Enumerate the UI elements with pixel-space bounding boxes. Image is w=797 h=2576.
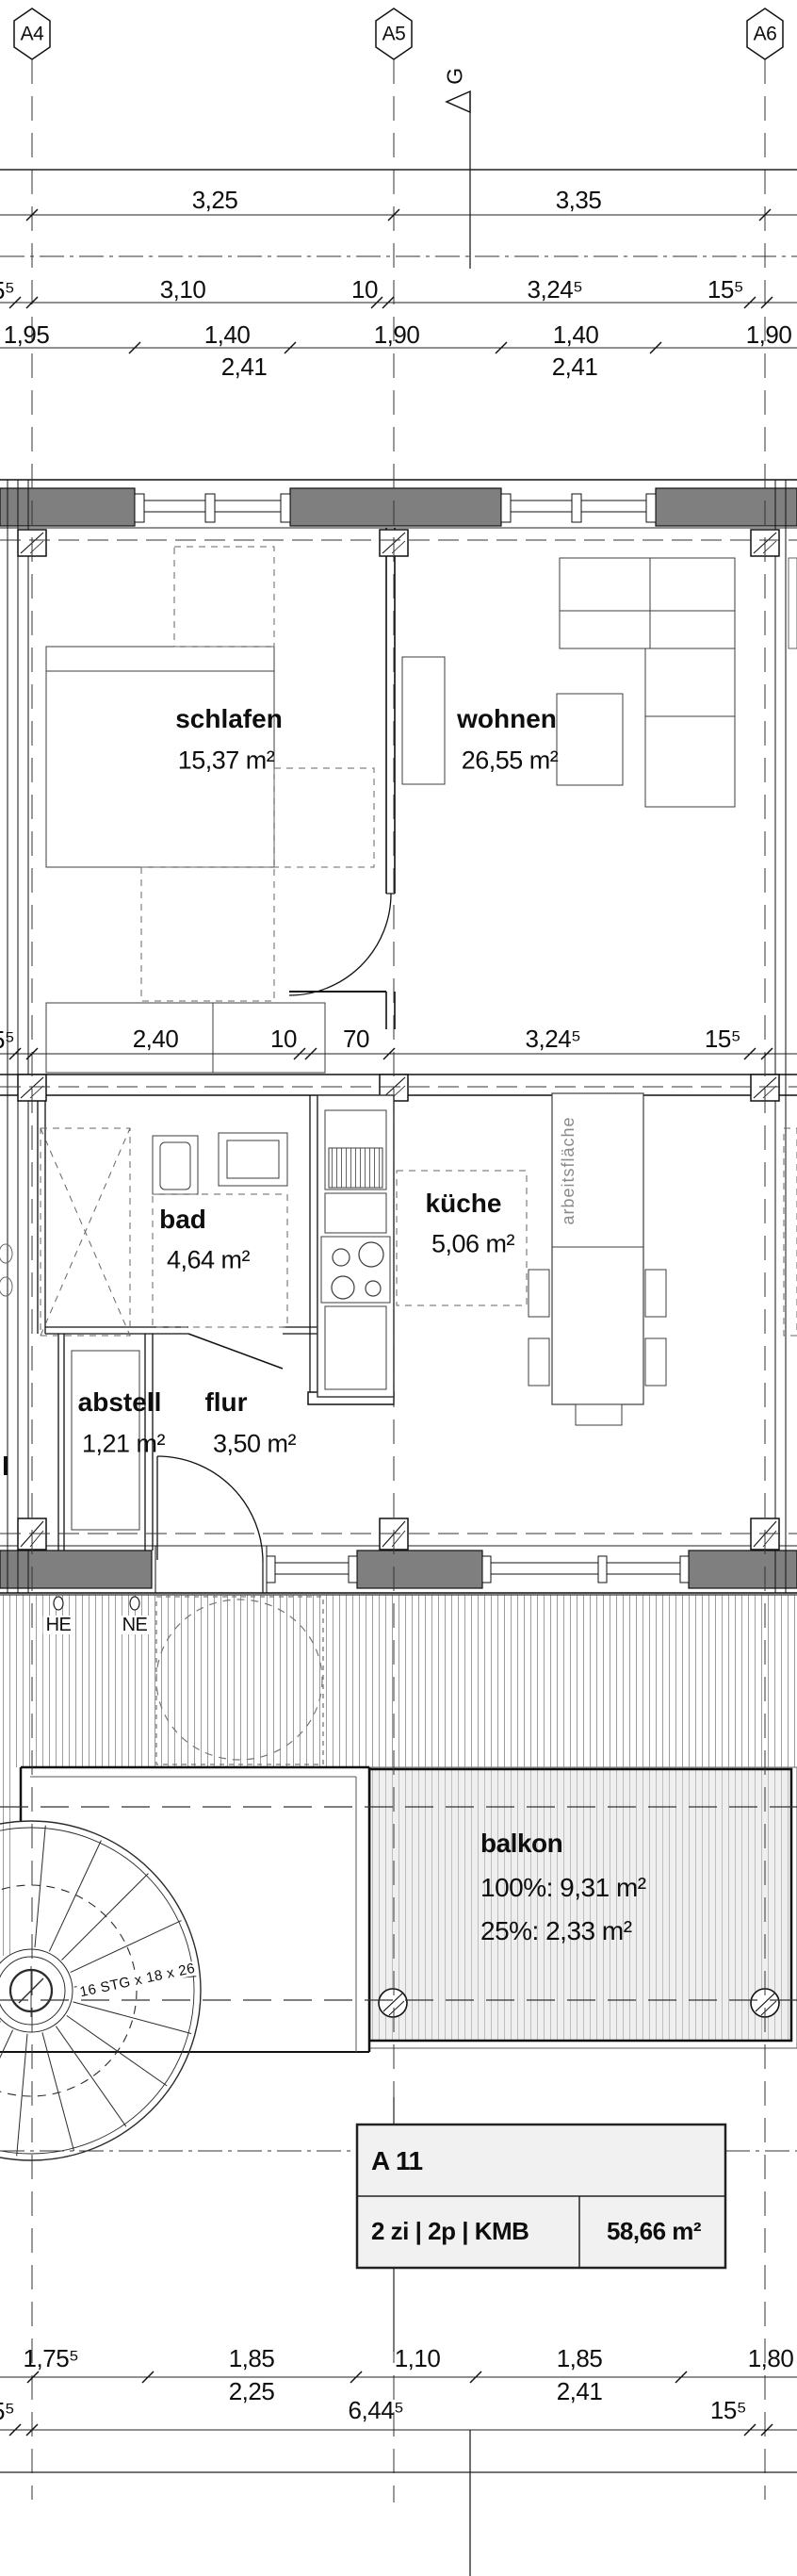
balkon-area-full: 100%: 9,31 m²	[480, 1875, 646, 1901]
kitchen-unit	[317, 1095, 394, 1397]
room-label-kueche: küche	[426, 1190, 502, 1217]
dim-top2-4: 15⁵	[708, 277, 743, 302]
dim-bot1b-0: 2,25	[229, 2379, 275, 2404]
toilet	[153, 1136, 198, 1194]
dim-top2-2: 10	[351, 277, 378, 302]
meter-label-he: HE	[43, 1616, 74, 1634]
bathroom-sink	[219, 1133, 287, 1186]
top-exterior-wall	[0, 480, 797, 528]
dim-mid-1: 2,40	[133, 1026, 179, 1051]
room-area-wohnen: 26,55 m²	[462, 748, 559, 774]
title-block-unit-area: 58,66 m²	[607, 2219, 701, 2243]
dim-top2-0: 5⁵	[0, 278, 14, 303]
room-label-balkon: balkon	[480, 1830, 562, 1857]
dim-top4-1: 2,41	[552, 354, 598, 379]
room-area-abstell: 1,21 m²	[82, 1432, 165, 1457]
balkon-area-partial: 25%: 2,33 m²	[480, 1918, 632, 1944]
worktop-label: arbeitsfläche	[560, 1116, 577, 1224]
room-label-bad: bad	[159, 1206, 206, 1233]
room-label-wohnen: wohnen	[457, 706, 557, 732]
dim-top1-1: 3,35	[556, 188, 602, 212]
dim-bot1-2: 1,10	[395, 2346, 441, 2371]
dim-bot2-2: 15⁵	[710, 2398, 746, 2422]
dim-mid-2: 10	[270, 1026, 297, 1051]
dim-bot2-1: 6,44⁵	[349, 2398, 404, 2422]
dim-bot1b-1: 2,41	[557, 2379, 603, 2404]
dim-mid-3: 70	[343, 1026, 369, 1051]
left-edge-fragment: l	[2, 1453, 9, 1480]
grid-marker-a5: A5	[382, 25, 406, 44]
dim-top1-0: 3,25	[192, 188, 238, 212]
dim-bot1-1: 1,85	[229, 2346, 275, 2371]
dim-top3-1: 1,40	[204, 322, 251, 347]
dim-bot1-4: 1,80	[748, 2346, 794, 2371]
section-marker-label: G	[445, 68, 466, 84]
section-flag-icon	[447, 91, 470, 112]
room-label-abstell: abstell	[78, 1389, 162, 1416]
bottom-exterior-wall	[0, 1546, 797, 1593]
shower	[41, 1128, 130, 1336]
shelf	[402, 657, 445, 784]
dim-top3-3: 1,40	[553, 322, 599, 347]
dim-top2-3: 3,24⁵	[528, 277, 583, 302]
dim-top2-1: 3,10	[160, 277, 206, 302]
floorplan-sheet: A4 A5 A6 G 3,25 3,35 5⁵ 3,10 10 3,24⁵ 15…	[0, 0, 797, 2576]
floorplan-linework	[0, 0, 797, 2576]
meter-label-ne: NE	[120, 1616, 151, 1634]
dim-top3-0: 1,95	[4, 322, 50, 347]
grid-marker-a4: A4	[21, 25, 44, 44]
title-block-unit-id: A 11	[371, 2148, 423, 2174]
room-area-kueche: 5,06 m²	[431, 1232, 514, 1257]
dim-top3-2: 1,90	[374, 322, 420, 347]
room-area-schlafen: 15,37 m²	[178, 748, 275, 774]
grid-marker-a6: A6	[754, 25, 777, 44]
dim-mid-5: 15⁵	[705, 1026, 740, 1051]
balcony	[358, 1767, 797, 2048]
room-label-flur: flur	[204, 1389, 247, 1416]
dim-mid-4: 3,24⁵	[526, 1026, 581, 1051]
dim-top4-0: 2,41	[221, 354, 268, 379]
room-area-bad: 4,64 m²	[167, 1248, 250, 1273]
dim-bot1-0: 1,75⁵	[24, 2346, 79, 2371]
dining-table	[529, 1093, 666, 1425]
dim-bot1-3: 1,85	[557, 2346, 603, 2371]
dim-mid-0: 5⁵	[0, 1027, 14, 1052]
furniture	[0, 547, 797, 1530]
room-area-flur: 3,50 m²	[213, 1432, 296, 1457]
dim-top3-4: 1,90	[746, 322, 792, 347]
sofa	[557, 558, 735, 807]
title-block-unit-config: 2 zi | 2p | KMB	[371, 2219, 529, 2243]
dim-bot2-0: 5⁵	[0, 2399, 14, 2423]
room-label-schlafen: schlafen	[175, 706, 283, 732]
